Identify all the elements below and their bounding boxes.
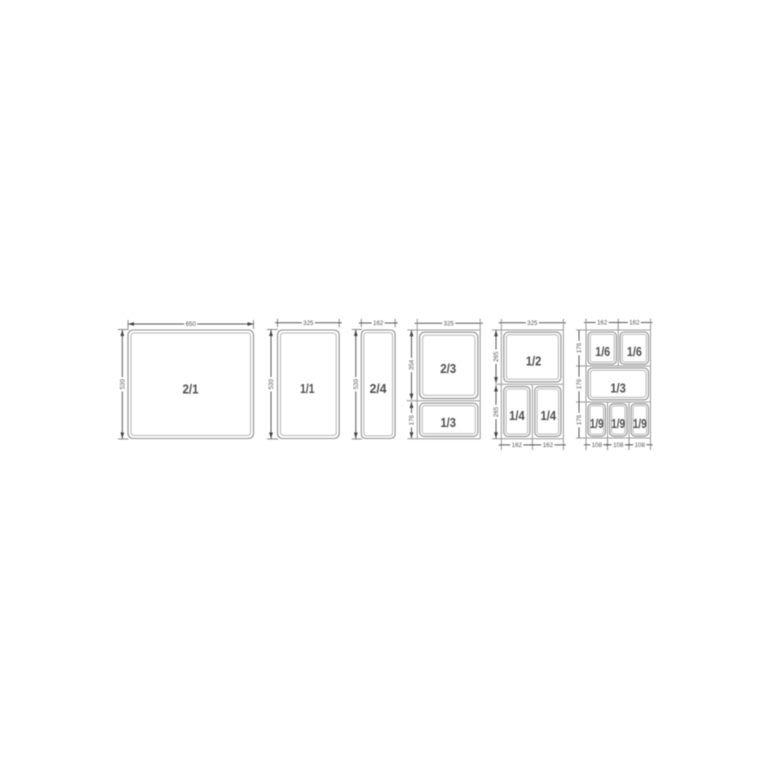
svg-text:325: 325 bbox=[444, 320, 455, 327]
svg-text:265: 265 bbox=[493, 406, 500, 417]
svg-text:354: 354 bbox=[409, 359, 416, 370]
svg-text:176: 176 bbox=[576, 378, 583, 389]
svg-text:162: 162 bbox=[373, 320, 384, 327]
svg-text:108: 108 bbox=[613, 442, 624, 449]
svg-text:1/9: 1/9 bbox=[611, 416, 625, 431]
svg-text:176: 176 bbox=[576, 342, 583, 353]
svg-text:1/6: 1/6 bbox=[627, 344, 642, 359]
svg-text:1/9: 1/9 bbox=[590, 416, 604, 431]
svg-text:1/3: 1/3 bbox=[610, 380, 626, 395]
svg-text:1/6: 1/6 bbox=[595, 344, 610, 359]
svg-text:265: 265 bbox=[493, 351, 500, 362]
svg-text:1/4: 1/4 bbox=[509, 408, 525, 423]
svg-text:1/2: 1/2 bbox=[526, 354, 542, 369]
svg-text:1/1: 1/1 bbox=[300, 381, 314, 396]
svg-text:1/3: 1/3 bbox=[440, 415, 456, 430]
svg-text:325: 325 bbox=[303, 320, 314, 327]
svg-text:2/1: 2/1 bbox=[183, 381, 199, 396]
svg-text:162: 162 bbox=[512, 442, 523, 449]
svg-text:2/3: 2/3 bbox=[440, 361, 456, 376]
svg-text:162: 162 bbox=[597, 320, 608, 327]
svg-text:162: 162 bbox=[629, 320, 640, 327]
svg-text:176: 176 bbox=[409, 414, 416, 425]
svg-text:325: 325 bbox=[527, 320, 538, 327]
svg-text:108: 108 bbox=[592, 442, 603, 449]
svg-text:530: 530 bbox=[119, 379, 126, 390]
svg-text:162: 162 bbox=[543, 442, 554, 449]
svg-text:176: 176 bbox=[576, 414, 583, 425]
svg-text:530: 530 bbox=[353, 379, 360, 390]
svg-text:108: 108 bbox=[635, 442, 646, 449]
svg-text:1/4: 1/4 bbox=[541, 408, 557, 423]
svg-text:1/9: 1/9 bbox=[633, 416, 647, 431]
svg-text:2/4: 2/4 bbox=[370, 381, 388, 396]
svg-text:530: 530 bbox=[268, 379, 275, 390]
svg-text:650: 650 bbox=[186, 321, 197, 328]
